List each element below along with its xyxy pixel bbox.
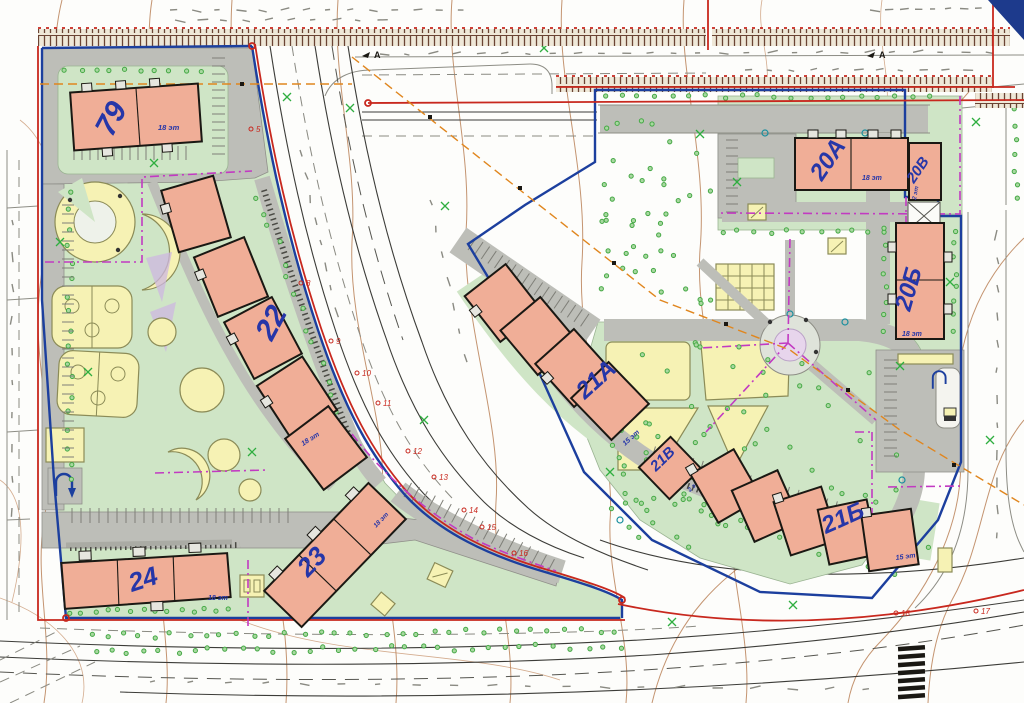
road-section-marker: А bbox=[879, 50, 886, 60]
vertex-number: 11 bbox=[383, 399, 391, 408]
survey-cross-icon bbox=[283, 93, 291, 101]
vertex-number: 17 bbox=[981, 607, 990, 616]
road-section-marker: А bbox=[374, 50, 381, 60]
building-floors-20b: 18 эт bbox=[902, 331, 922, 338]
vertex-number: 9 bbox=[336, 337, 341, 346]
vertex-number: 10 bbox=[362, 369, 371, 378]
site-plan-svg: 79 18 эт 22 18 эт 23 18 эт 24 18 эт 20А … bbox=[0, 0, 1024, 703]
vertex-number: 8 bbox=[306, 279, 311, 288]
play-circle bbox=[239, 479, 261, 501]
vertex-number: 16 bbox=[519, 549, 528, 558]
play-circle bbox=[180, 368, 224, 412]
building-floors-20a: 18 эт bbox=[862, 175, 882, 182]
manhole-icon bbox=[617, 517, 623, 523]
survey-cross-icon bbox=[346, 104, 354, 112]
vertex-number: 13 bbox=[439, 473, 448, 482]
vertex-number: 12 bbox=[413, 447, 422, 456]
site-plan-canvas: 79 18 эт 22 18 эт 23 18 эт 24 18 эт 20А … bbox=[0, 0, 1024, 703]
play-circle bbox=[148, 318, 176, 346]
building-floors-79: 18 эт bbox=[158, 123, 180, 132]
survey-cross-icon bbox=[441, 202, 449, 210]
vertex-number: 15 bbox=[487, 523, 496, 532]
crosswalk bbox=[898, 645, 925, 699]
transformer-box bbox=[748, 204, 766, 220]
vertex-number: 18 bbox=[901, 609, 910, 618]
hatch-strip-top-right bbox=[712, 29, 1010, 46]
survey-cross-icon bbox=[972, 118, 980, 126]
building-floors-24: 18 эт bbox=[208, 595, 228, 602]
road-section-markers: АА bbox=[362, 50, 886, 60]
transformer-box bbox=[240, 575, 264, 597]
vertex-number: 5 bbox=[256, 125, 261, 134]
survey-cross-icon bbox=[986, 436, 994, 444]
vertex-number: 14 bbox=[469, 506, 478, 515]
survey-cross-icon bbox=[668, 618, 676, 626]
hatch-strip-top-left bbox=[38, 29, 706, 46]
transformer-box bbox=[828, 238, 846, 254]
play-circle bbox=[208, 439, 240, 471]
survey-cross-icon bbox=[789, 601, 797, 609]
